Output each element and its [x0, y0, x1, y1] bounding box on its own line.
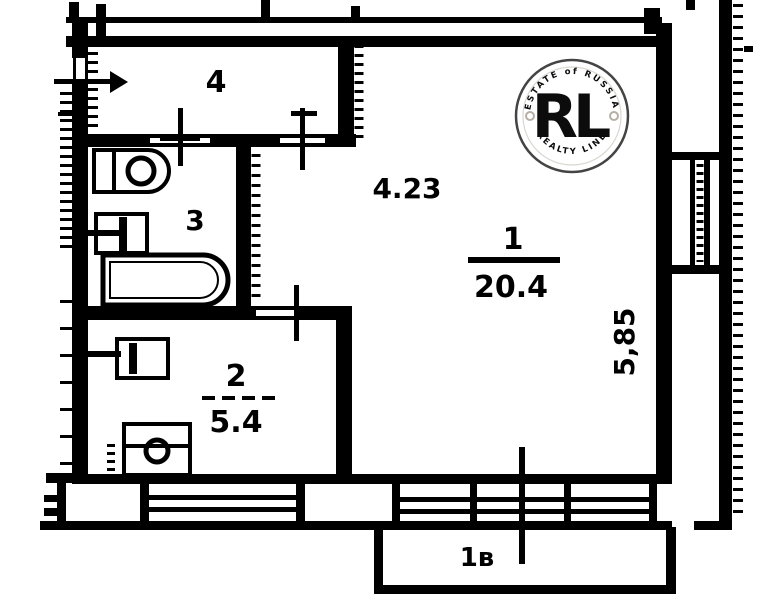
wall-segment [256, 316, 296, 320]
room1-window-divider [564, 484, 571, 521]
kitchen-window-jamb [296, 484, 305, 521]
wall-segment [338, 37, 354, 147]
balcony-door-line [519, 447, 525, 564]
toilet-tank [94, 150, 114, 192]
wall-segment [57, 483, 66, 527]
wall-segment [40, 521, 672, 530]
hall-door-line [300, 108, 305, 170]
room1-number: 1 [503, 222, 524, 257]
wall-segment [44, 508, 57, 516]
wall-segment [336, 306, 352, 483]
room1-area: 20.4 [474, 270, 548, 305]
kitchen-window-jamb [140, 484, 149, 521]
wall-segment [663, 265, 723, 274]
kitchen-sink-tap-bar [129, 343, 137, 374]
wall-segment [66, 17, 662, 23]
wall-segment [96, 4, 106, 38]
kitchen-window-pane [149, 495, 296, 500]
dimension-width: 4.23 [372, 172, 441, 205]
wall-segment [690, 160, 695, 265]
room1-window-jamb [392, 484, 400, 521]
wall-segment [236, 140, 251, 318]
wall-segment [704, 160, 710, 265]
room1-fraction-line [468, 257, 560, 263]
kitchen-sink [117, 339, 168, 378]
room3-number: 3 [185, 204, 204, 237]
stamp-monogram: RL [532, 82, 610, 152]
wall-segment [694, 521, 732, 530]
wall-segment [261, 0, 270, 20]
dimension-height: 5,85 [608, 307, 641, 376]
wall-segment [46, 473, 88, 483]
hall-door-tick [291, 111, 317, 116]
bathroom-door-tick [160, 136, 200, 141]
wall-segment [44, 495, 57, 502]
wall-segment [744, 46, 753, 52]
kitchen-window-pane [149, 507, 296, 512]
wall-segment [66, 36, 672, 47]
room4-number: 4 [206, 65, 227, 100]
stove-line [124, 444, 190, 448]
wall-segment [351, 6, 360, 23]
wall-segment [72, 17, 88, 58]
wall-segment [663, 152, 723, 160]
wall-segment [686, 0, 695, 10]
balcony-wall [374, 585, 676, 594]
stove [124, 424, 190, 475]
room2-number: 2 [226, 359, 247, 394]
balcony-wall [666, 527, 676, 593]
wall-segment [256, 306, 296, 310]
entrance-arrow-head [110, 71, 128, 93]
wall-segment [72, 84, 88, 483]
floor-plan-drawing: 4 3 2 5.4 1 20.4 4.23 5,85 1в ESTATE of … [0, 0, 773, 600]
entrance-arrow-line [54, 79, 110, 84]
kitchen-door-line [294, 285, 299, 341]
watermark-stamp: ESTATE of RUSSIA REALTY LINE RL [516, 60, 628, 172]
room1-window-jamb [649, 484, 657, 521]
wall-segment [656, 23, 672, 483]
wall-segment [325, 134, 356, 147]
room1-window-divider [470, 484, 477, 521]
kitchen-sink-tap-stem [88, 351, 121, 357]
balcony-label: 1в [460, 543, 495, 573]
room2-area: 5.4 [209, 405, 262, 440]
bath-sink-tap-bar [119, 217, 127, 251]
floor-plan-page: 4 3 2 5.4 1 20.4 4.23 5,85 1в ESTATE of … [0, 0, 773, 600]
bathtub-inner [110, 262, 218, 298]
wall-segment [86, 134, 150, 147]
wall-segment [86, 306, 256, 320]
bath-sink-tap-stem [88, 230, 122, 236]
balcony-wall [374, 527, 383, 593]
